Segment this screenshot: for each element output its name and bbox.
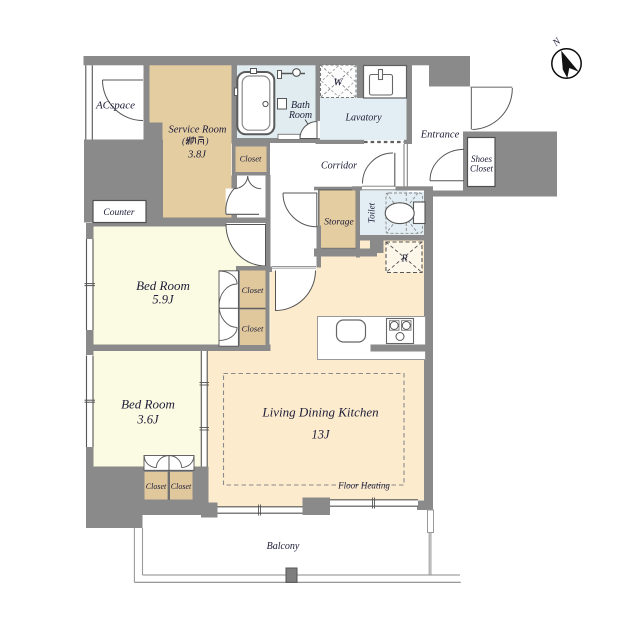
svg-text:Closet: Closet (242, 285, 264, 295)
svg-text:Floor Heating: Floor Heating (337, 481, 390, 491)
svg-text:R: R (400, 254, 407, 265)
svg-text:Toilet: Toilet (367, 202, 377, 223)
svg-text:Bed Room: Bed Room (121, 397, 175, 412)
svg-text:13J: 13J (311, 428, 331, 442)
svg-text:Balcony: Balcony (267, 541, 300, 552)
svg-text:ACspace: ACspace (95, 100, 135, 112)
svg-text:Closet: Closet (146, 482, 167, 491)
svg-text:5.9J: 5.9J (152, 293, 175, 307)
svg-text:Room: Room (288, 110, 312, 121)
svg-text:Entrance: Entrance (420, 130, 460, 141)
svg-text:Bed Room: Bed Room (136, 278, 190, 293)
svg-text:Storage: Storage (324, 218, 354, 228)
svg-text:Closet: Closet (240, 154, 262, 164)
svg-text:Service Room: Service Room (168, 125, 226, 136)
svg-text:Corridor: Corridor (321, 161, 357, 172)
svg-text:Closet: Closet (171, 482, 192, 491)
svg-text:): ) (205, 136, 209, 146)
svg-text:Counter: Counter (103, 208, 134, 218)
svg-text:W: W (333, 77, 343, 89)
svg-text:Shoes: Shoes (471, 154, 492, 164)
svg-text:3.6J: 3.6J (136, 413, 160, 427)
svg-text:Lavatory: Lavatory (344, 113, 382, 124)
svg-text:Closet: Closet (242, 324, 264, 334)
svg-text:Living Dining Kitchen: Living Dining Kitchen (261, 405, 378, 420)
svg-text:Closet: Closet (470, 164, 494, 174)
svg-text:3.8J: 3.8J (187, 150, 207, 161)
